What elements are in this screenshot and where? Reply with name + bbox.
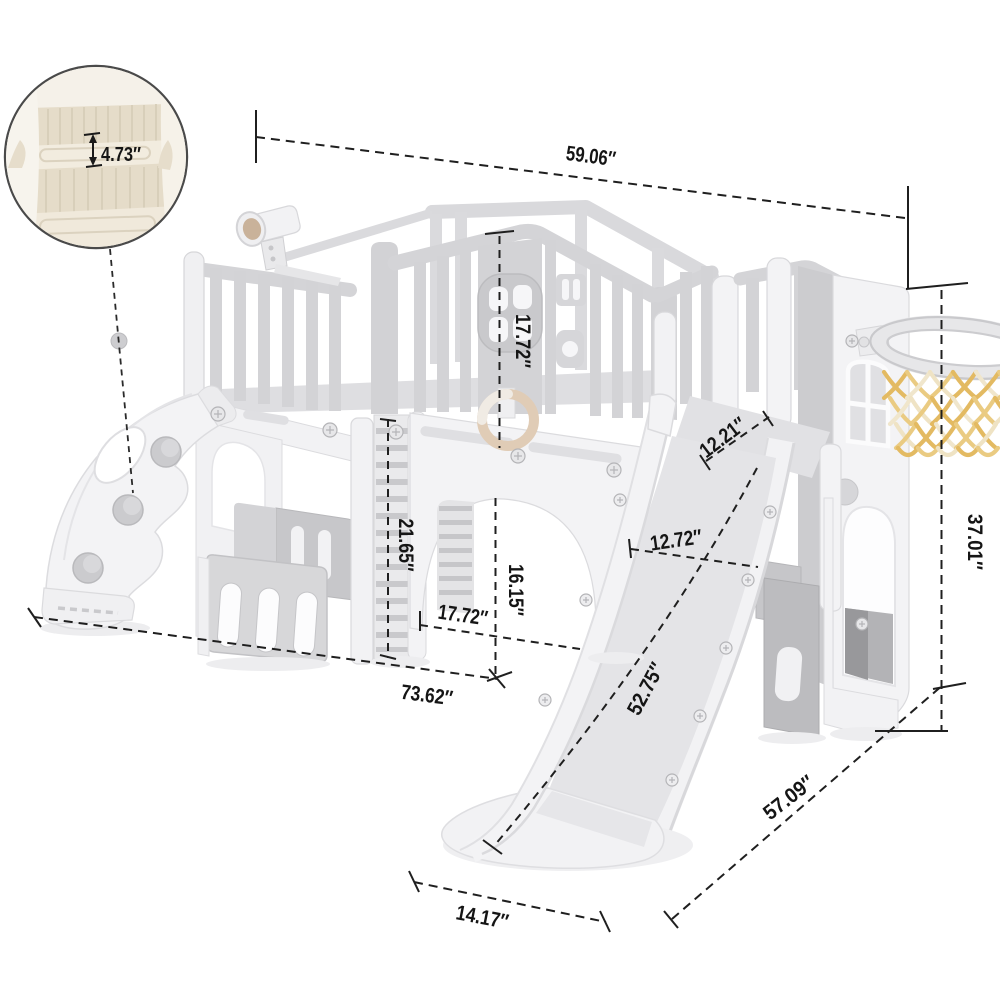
svg-text:21.65″: 21.65″ (394, 519, 417, 572)
svg-text:17.72″: 17.72″ (511, 314, 534, 368)
svg-text:16.15″: 16.15″ (504, 564, 527, 616)
svg-text:4.73″: 4.73″ (101, 144, 141, 166)
svg-text:37.01″: 37.01″ (963, 514, 986, 570)
